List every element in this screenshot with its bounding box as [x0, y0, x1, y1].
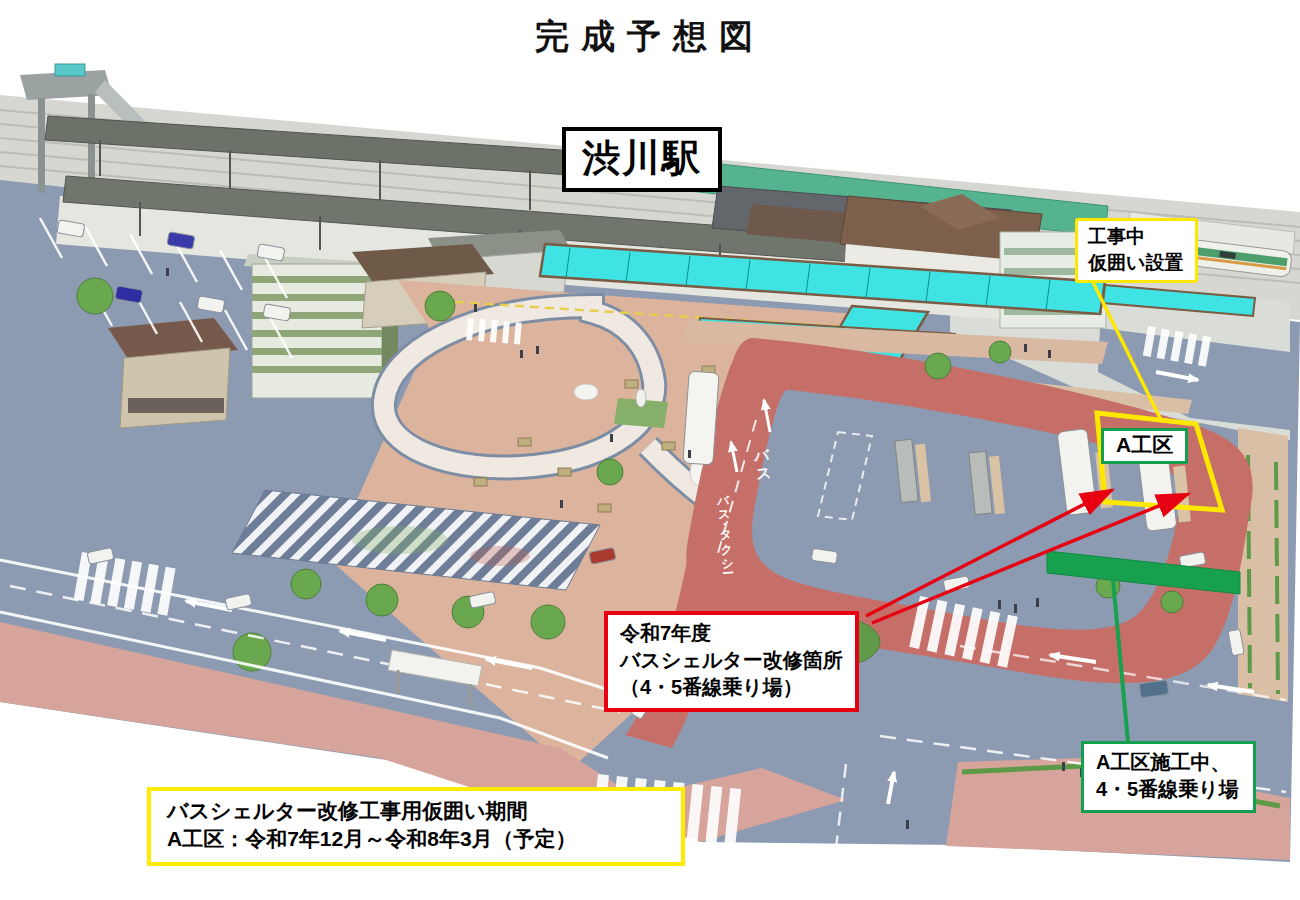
renovation-line3: （4・5番線乗り場）	[620, 674, 843, 701]
construction-callout-line1: 工事中	[1088, 224, 1183, 250]
construction-callout-line2: 仮囲い設置	[1088, 250, 1183, 276]
station-name-label: 渋川駅	[562, 127, 722, 192]
temp-stop-line1: A工区施工中、	[1096, 749, 1239, 776]
renovation-line2: バスシェルター改修箇所	[620, 647, 843, 674]
renovation-callout: 令和7年度 バスシェルター改修箇所 （4・5番線乗り場）	[604, 611, 859, 712]
period-line1: バスシェルター改修工事用仮囲い期間	[167, 797, 665, 825]
period-callout: バスシェルター改修工事用仮囲い期間 A工区：令和7年12月～令和8年3月（予定）	[147, 787, 685, 866]
period-line2: A工区：令和7年12月～令和8年3月（予定）	[167, 825, 665, 853]
zone-a-label: A工区	[1101, 428, 1188, 464]
renovation-line1: 令和7年度	[620, 620, 843, 647]
completion-rendering-page: 完成予想図 渋川駅 工事中 仮囲い設置 A工区 令和7年度 バスシェルター改修箇…	[0, 0, 1300, 900]
temp-stop-line2: 4・5番線乗り場	[1096, 776, 1239, 803]
construction-callout: 工事中 仮囲い設置	[1075, 218, 1198, 283]
page-title: 完成予想図	[0, 14, 1300, 60]
temp-stop-callout: A工区施工中、 4・5番線乗り場	[1081, 741, 1256, 813]
